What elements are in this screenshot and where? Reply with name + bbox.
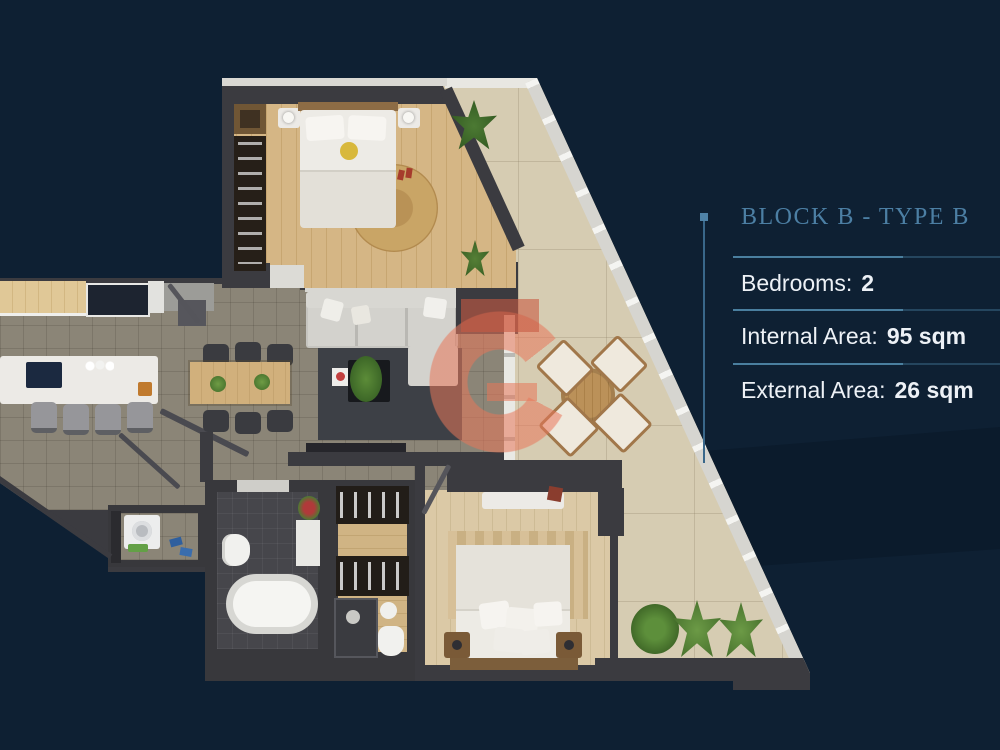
wardrobe-clothes	[238, 142, 262, 264]
utility-room	[108, 505, 205, 567]
unit-title: BLOCK B - TYPE B	[741, 204, 1000, 231]
closet-clothes	[340, 562, 405, 590]
bath-vanity	[296, 520, 320, 566]
island-bowls	[84, 360, 114, 372]
island-sink	[26, 362, 62, 388]
nightstand-lamp	[403, 112, 414, 123]
laundry-cloth	[128, 544, 148, 552]
stat-internal-value: 95 sqm	[887, 323, 966, 349]
plan-top-edge	[222, 78, 447, 86]
toilet	[222, 534, 250, 566]
bedroom2-left-wall	[415, 452, 425, 681]
dining-table	[190, 362, 290, 404]
bathroom	[205, 480, 330, 681]
bedroom2-top-wall	[447, 460, 622, 492]
bed1-pillow	[305, 115, 345, 142]
bedside-lamp	[452, 640, 462, 650]
stat-divider	[733, 309, 1000, 311]
kitchen-counter-wood	[0, 281, 86, 316]
shower-head	[346, 610, 360, 624]
table-plant	[210, 376, 226, 392]
stat-divider	[733, 256, 1000, 258]
cabinet-inner	[240, 110, 260, 128]
terrace-bottom-wall	[595, 658, 815, 692]
walkin-closet	[330, 480, 415, 681]
stat-bedrooms: Bedrooms:2	[741, 270, 1000, 304]
watermark-top-block	[461, 299, 539, 332]
stat-external-area: External Area:26 sqm	[741, 377, 1000, 411]
washer-door	[132, 521, 152, 541]
dining-chair	[235, 412, 261, 434]
bed1-duvet	[300, 170, 396, 228]
utility-shelf	[111, 511, 121, 563]
stat-divider	[733, 363, 1000, 365]
watermark-crossbar	[487, 383, 537, 401]
panel-line-dot	[700, 213, 708, 221]
bar-stool	[127, 402, 153, 433]
closet-clothes	[340, 492, 405, 518]
kitchen-counter-stove	[86, 283, 150, 317]
stat-bedrooms-label: Bedrooms:	[741, 270, 852, 296]
red-flower	[336, 372, 345, 381]
cutting-board	[138, 382, 152, 396]
shower	[334, 598, 378, 658]
fern-plant	[350, 356, 382, 402]
dresser-decor	[547, 486, 563, 502]
table-plant	[254, 374, 270, 390]
dining-chair	[203, 410, 229, 432]
bed2-pillow	[533, 601, 563, 627]
sofa-pillow	[351, 305, 372, 326]
stat-external-value: 26 sqm	[894, 377, 973, 403]
stat-internal-area: Internal Area:95 sqm	[741, 323, 1000, 357]
kitchen-island	[0, 356, 158, 404]
bar-stool	[95, 404, 121, 435]
bedroom2-right-wall	[598, 488, 624, 536]
bar-stool	[63, 404, 89, 435]
fridge	[148, 281, 164, 313]
bathtub-inner	[233, 581, 311, 627]
tv-wall-baseboard	[305, 288, 460, 292]
bed1-pillow	[347, 115, 386, 141]
bedroom1-left-wall	[222, 86, 234, 288]
bar-stool	[31, 402, 57, 433]
stat-external-label: External Area:	[741, 377, 885, 403]
stat-internal-label: Internal Area:	[741, 323, 878, 349]
dining-chair	[267, 410, 293, 432]
ensuite-sink	[380, 602, 397, 619]
bathroom-door-threshold	[237, 480, 289, 492]
bedside-lamp	[564, 640, 574, 650]
ensuite-toilet	[378, 626, 404, 656]
round-bush	[631, 604, 679, 654]
bed1-round-cushion	[340, 142, 358, 160]
bed2-headboard	[450, 658, 578, 670]
dining-chair	[235, 342, 261, 364]
bed2-pillow	[519, 628, 551, 655]
bedroom2-right-wall-lower	[610, 532, 618, 668]
bedroom1-door-threshold	[270, 265, 304, 288]
nightstand-lamp	[283, 112, 294, 123]
panel-vertical-line	[703, 221, 705, 463]
sofa-pillow	[423, 297, 448, 320]
stat-bedrooms-value: 2	[861, 270, 874, 296]
vanity-flowers	[298, 496, 320, 520]
floorplan-presentation: BLOCK B - TYPE B Bedrooms:2 Internal Are…	[0, 0, 1000, 750]
hall-wall	[200, 432, 213, 482]
